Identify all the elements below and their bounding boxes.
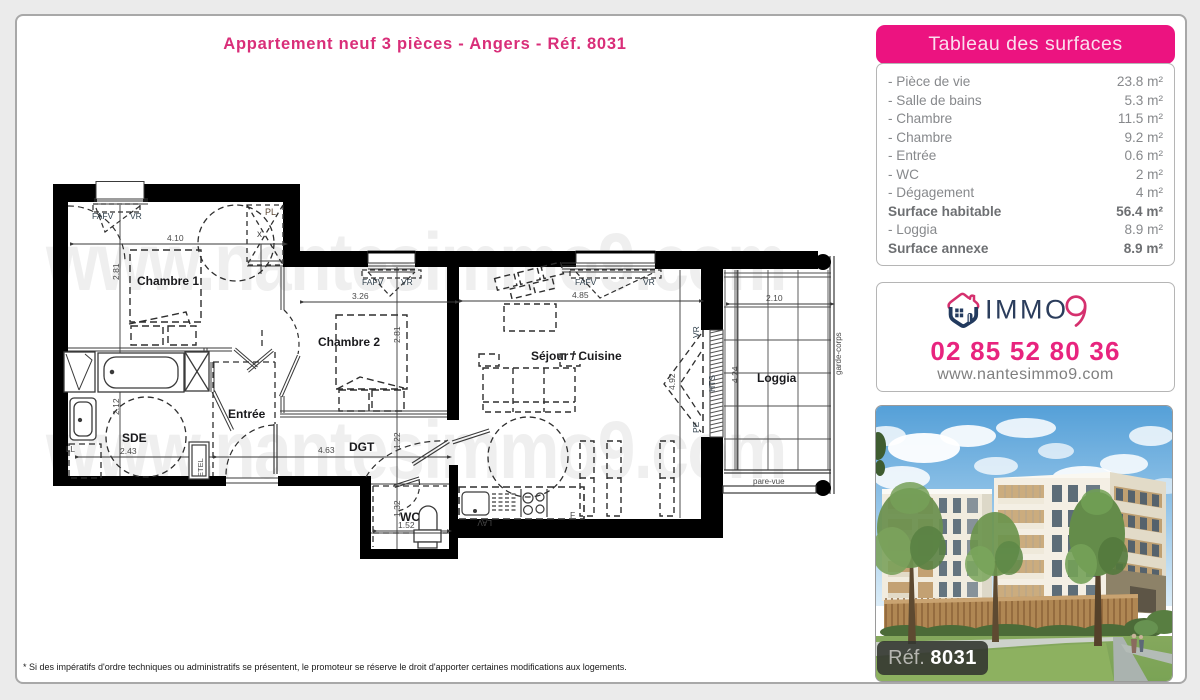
svg-text:Entrée: Entrée — [228, 407, 266, 421]
svg-text:F: F — [570, 510, 575, 520]
svg-text:VR: VR — [643, 277, 655, 287]
svg-text:pare-vue: pare-vue — [753, 477, 785, 486]
svg-text:ETEL: ETEL — [196, 458, 205, 477]
svg-text:4.85: 4.85 — [572, 290, 589, 300]
svg-text:4.24: 4.24 — [730, 366, 740, 383]
svg-text:SDE: SDE — [122, 431, 147, 445]
svg-text:DGT: DGT — [349, 440, 375, 454]
svg-text:FAFV: FAFV — [575, 277, 597, 287]
svg-text:Chambre 1: Chambre 1 — [137, 274, 199, 288]
svg-text:2.81: 2.81 — [111, 263, 121, 280]
svg-text:LL: LL — [66, 445, 75, 454]
svg-text:2.81: 2.81 — [392, 326, 402, 343]
svg-text:1.22: 1.22 — [392, 432, 402, 449]
svg-text:Loggia: Loggia — [757, 371, 797, 385]
svg-text:PE: PE — [691, 421, 701, 433]
svg-text:IMMO: IMMO — [985, 295, 1069, 325]
svg-text:VR: VR — [401, 277, 413, 287]
svg-text:garde-corps: garde-corps — [834, 332, 843, 375]
svg-text:LAV: LAV — [477, 518, 492, 527]
svg-text:FAFV: FAFV — [362, 277, 384, 287]
svg-text:VR: VR — [691, 326, 701, 338]
svg-text:WC: WC — [400, 510, 420, 524]
svg-text:FAFV: FAFV — [92, 211, 114, 221]
svg-text:HTS: HTS — [707, 375, 717, 392]
svg-text:x: x — [257, 229, 262, 240]
svg-text:3.26: 3.26 — [352, 291, 369, 301]
svg-text:Séjour / Cuisine: Séjour / Cuisine — [531, 349, 622, 363]
svg-text:VR: VR — [130, 211, 142, 221]
svg-text:2.10: 2.10 — [766, 293, 783, 303]
svg-text:PL: PL — [265, 207, 276, 217]
svg-text:4.63: 4.63 — [318, 445, 335, 455]
svg-text:2.43: 2.43 — [120, 446, 137, 456]
svg-text:Chambre 2: Chambre 2 — [318, 335, 380, 349]
svg-text:2.12: 2.12 — [111, 398, 121, 415]
svg-text:4.10: 4.10 — [167, 233, 184, 243]
svg-text:4.92: 4.92 — [667, 373, 677, 390]
